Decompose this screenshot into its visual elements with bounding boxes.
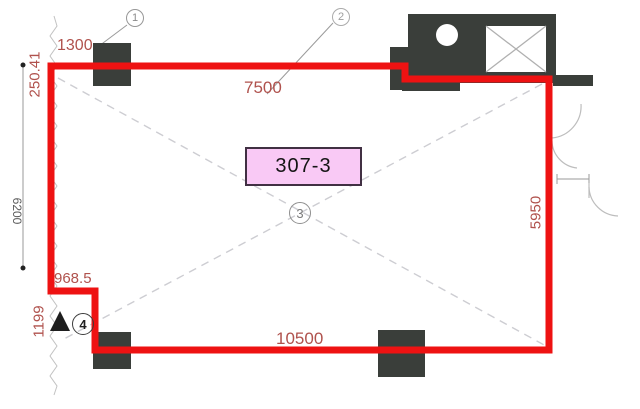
dimension-bottom-width: 10500 xyxy=(276,329,323,349)
dimension-top-width: 7500 xyxy=(244,78,282,98)
door-swing-arc xyxy=(552,104,581,138)
dimension-notch-height: 1199 xyxy=(31,287,48,357)
grid-bubble-4-number: 4 xyxy=(79,317,86,332)
shaft-pipe-circle xyxy=(436,24,458,46)
door-swing-arc xyxy=(589,187,618,216)
grid-bubble-2: 2 xyxy=(332,8,350,26)
dimension-left-height: 6200 xyxy=(10,176,24,246)
dimension-endpoint-dot xyxy=(21,266,26,271)
grid-bubble-3-number: 3 xyxy=(296,206,303,221)
room-label[interactable]: 307-3 xyxy=(245,147,362,186)
door-swing-arc xyxy=(552,141,577,168)
floor-plan-canvas: 1300 250.41 7500 6200 5950 968.5 1199 10… xyxy=(0,0,640,409)
grid-bubble-2-number: 2 xyxy=(338,11,344,23)
dimension-notch-width: 968.5 xyxy=(54,270,92,287)
grid-bubble-4: 4 xyxy=(72,313,94,335)
dimension-endpoint-dot xyxy=(21,63,26,68)
dimension-top-left-width: 1300 xyxy=(57,37,93,55)
corridor-wall-strip xyxy=(553,75,593,86)
grid-bubble-3: 3 xyxy=(289,202,311,224)
grid-bubble-1: 1 xyxy=(126,9,144,27)
dimension-right-height: 5950 xyxy=(528,178,545,248)
grid-bubble-1-number: 1 xyxy=(132,12,138,24)
room-label-text: 307-3 xyxy=(275,155,331,178)
dimension-top-left-offset: 250.41 xyxy=(27,40,44,110)
